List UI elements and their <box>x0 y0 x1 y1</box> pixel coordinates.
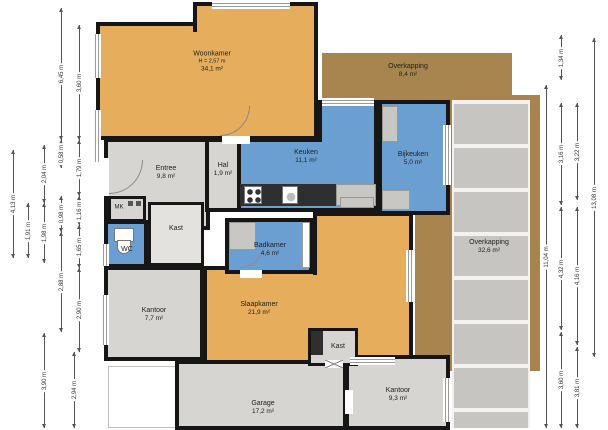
dimension-label: 3,60 m <box>559 369 565 391</box>
room-garage <box>175 360 347 430</box>
dimension: 2,04 m <box>41 145 48 203</box>
dimension: 0,98 m <box>58 196 65 232</box>
dimension: 2,90 m <box>76 268 83 352</box>
window-kantoor-rechts-top <box>350 357 395 365</box>
stove-icon <box>244 186 262 204</box>
dimension: 1,16 m <box>76 196 83 225</box>
dimension: 4,32 m <box>558 207 565 330</box>
window-woonkamer-left-2 <box>93 110 101 162</box>
garage-kantoor-opening <box>345 390 353 414</box>
dimension-label: 1,98 m <box>42 222 48 244</box>
dimension-label: 0,58 m <box>59 143 65 165</box>
dimension-label: 2,90 m <box>77 299 83 321</box>
window-bijkeuken-right <box>443 125 451 185</box>
dimension-label: 1,91 m <box>26 219 32 241</box>
dimension: 0,58 m <box>58 140 65 168</box>
badkamer-door-opening <box>240 270 262 278</box>
dimension: 3,60 m <box>76 25 83 140</box>
meter-icon <box>128 201 133 206</box>
label-kantoor-rechts: Kantoor 9,3 m² <box>386 387 411 403</box>
dimension-label: 2,88 m <box>59 271 65 293</box>
window-slaapkamer-right <box>406 250 414 302</box>
dimension-label: 1,34 m <box>559 46 565 68</box>
dimension: 13,08 m <box>591 38 598 357</box>
sink-icon <box>282 186 298 204</box>
window-kantoor-links-left <box>101 295 109 345</box>
dimension-label: 0,98 m <box>59 203 65 225</box>
dimension: 1,79 m <box>76 140 83 196</box>
front-door-opening <box>101 158 109 196</box>
dimension: 1,98 m <box>41 203 48 263</box>
dimension-label: 1,65 m <box>77 235 83 257</box>
dimension: 11,04 m <box>543 85 550 428</box>
kast-midden-door <box>325 360 343 368</box>
label-wc: WC <box>121 246 133 254</box>
label-keuken: Keuken 11,1 m² <box>294 149 318 165</box>
label-garage: Garage 17,2 m² <box>251 400 274 416</box>
dimension-label: 11,04 m <box>544 244 550 269</box>
dimension-label: 3,81 m <box>575 376 581 398</box>
bijkeuken-appliance <box>382 190 410 210</box>
label-slaapkamer: Slaapkamer 21,9 m² <box>240 301 277 317</box>
label-kast-hal: Kast <box>169 225 183 233</box>
window-woonkamer-left-1 <box>93 34 101 78</box>
dimension: 1,91 m <box>25 203 32 258</box>
label-entree: Entree 9,8 m² <box>156 165 177 181</box>
room-suite-passage <box>313 212 413 275</box>
label-overkapping-rechts: Overkapping 32,6 m² <box>469 239 509 255</box>
dimension-label: 1,16 m <box>77 199 83 221</box>
dimension-label: 2,04 m <box>42 163 48 185</box>
woonkamer-door-opening <box>222 136 250 144</box>
dimension: 6,45 m <box>58 8 65 140</box>
dimension-label: 3,22 m <box>575 140 581 162</box>
dimension-label: 6,45 m <box>59 63 65 85</box>
dimension-label: 4,16 m <box>575 265 581 287</box>
room-kast-hal <box>148 202 204 266</box>
dimension: 3,81 m <box>574 347 581 428</box>
window-kantoor-rechts-right <box>443 378 451 422</box>
label-kantoor-links: Kantoor 7,7 m² <box>142 307 167 323</box>
window-woonkamer-top <box>212 1 290 9</box>
label-overkapping-top: Overkapping 8,4 m² <box>388 63 428 79</box>
meter-icon <box>136 201 141 206</box>
dimension: 3,16 m <box>558 103 565 205</box>
dimension: 1,65 m <box>76 225 83 268</box>
label-hal: Hal 1,9 m² <box>214 162 232 178</box>
shower-screen <box>302 222 310 268</box>
keuken-threshold <box>340 197 374 208</box>
dimension-label: 3,16 m <box>559 143 565 165</box>
dimension: 3,22 m <box>574 103 581 200</box>
dimension: 1,34 m <box>558 35 565 80</box>
terrace-outline <box>108 366 178 428</box>
label-woonkamer: Woonkamer H = 2,57 m 34,1 m² <box>193 51 231 74</box>
room-woonkamer <box>96 22 318 140</box>
dimension: 3,60 m <box>558 332 565 428</box>
pergola-slats <box>452 100 530 428</box>
dimension: 3,90 m <box>41 333 48 428</box>
label-meterkast: MK <box>115 204 124 211</box>
dimension: 4,13 m <box>10 150 17 258</box>
dimension-label: 3,60 m <box>77 71 83 93</box>
dimension-label: 1,79 m <box>77 157 83 179</box>
dimension-label: 4,13 m <box>11 193 17 215</box>
dimension-label: 4,32 m <box>559 257 565 279</box>
boiler-icon <box>311 331 323 355</box>
label-bijkeuken: Bijkeuken 5,0 m² <box>398 151 428 167</box>
label-kast-midden: Kast <box>331 343 345 351</box>
dimension: 2,94 m <box>71 352 78 428</box>
dimension-label: 13,08 m <box>592 185 598 211</box>
dimension: 2,88 m <box>58 232 65 332</box>
dimension: 4,16 m <box>574 207 581 345</box>
window-keuken-top <box>322 98 374 106</box>
window-wc-left <box>101 244 109 266</box>
bijkeuken-cabinet <box>382 106 398 142</box>
floor-plan: 4,13 m1,91 m2,04 m1,98 m3,90 m6,45 m0,58… <box>0 0 608 430</box>
dimension-label: 2,94 m <box>72 379 78 401</box>
dimension-label: 3,90 m <box>42 369 48 391</box>
label-badkamer: Badkamer 4,6 m² <box>254 242 286 258</box>
room-keuken-ext <box>318 100 378 142</box>
